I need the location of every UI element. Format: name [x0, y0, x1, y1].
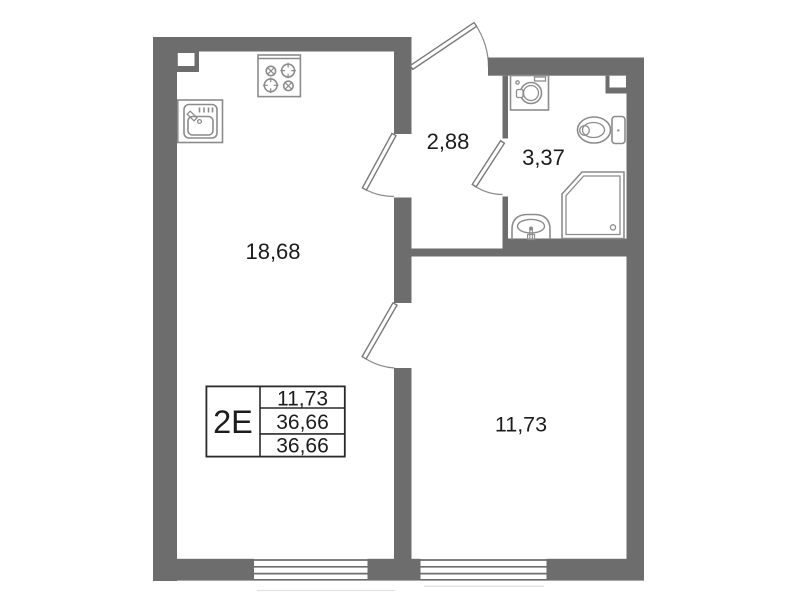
svg-text:2,88: 2,88 [427, 129, 470, 154]
svg-text:11,73: 11,73 [277, 387, 328, 410]
svg-text:11,73: 11,73 [495, 413, 547, 437]
svg-text:18,68: 18,68 [245, 239, 300, 264]
svg-text:3,37: 3,37 [522, 145, 565, 170]
svg-text:36,66: 36,66 [276, 435, 329, 458]
svg-text:36,66: 36,66 [276, 411, 329, 434]
svg-text:2E: 2E [213, 404, 253, 440]
